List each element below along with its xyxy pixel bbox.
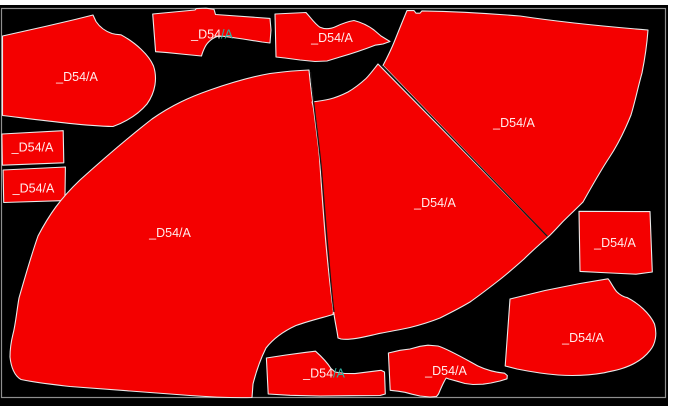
svg-text:_D54/A: _D54/A (413, 196, 456, 210)
svg-text:_D54/A: _D54/A (593, 236, 636, 250)
svg-text:_D54/A: _D54/A (561, 331, 604, 345)
svg-text:_D54/A: _D54/A (424, 364, 467, 378)
svg-text:_D54/A: _D54/A (148, 226, 191, 240)
svg-text:_D54/A: _D54/A (302, 367, 345, 381)
svg-text:_D54/A: _D54/A (12, 182, 55, 196)
svg-text:_D54/A: _D54/A (492, 116, 535, 130)
svg-text:_D54/A: _D54/A (55, 70, 98, 84)
svg-text:_D54/A: _D54/A (11, 141, 54, 155)
svg-text:_D54/A: _D54/A (310, 31, 353, 45)
svg-text:_D54/A: _D54/A (190, 28, 233, 42)
